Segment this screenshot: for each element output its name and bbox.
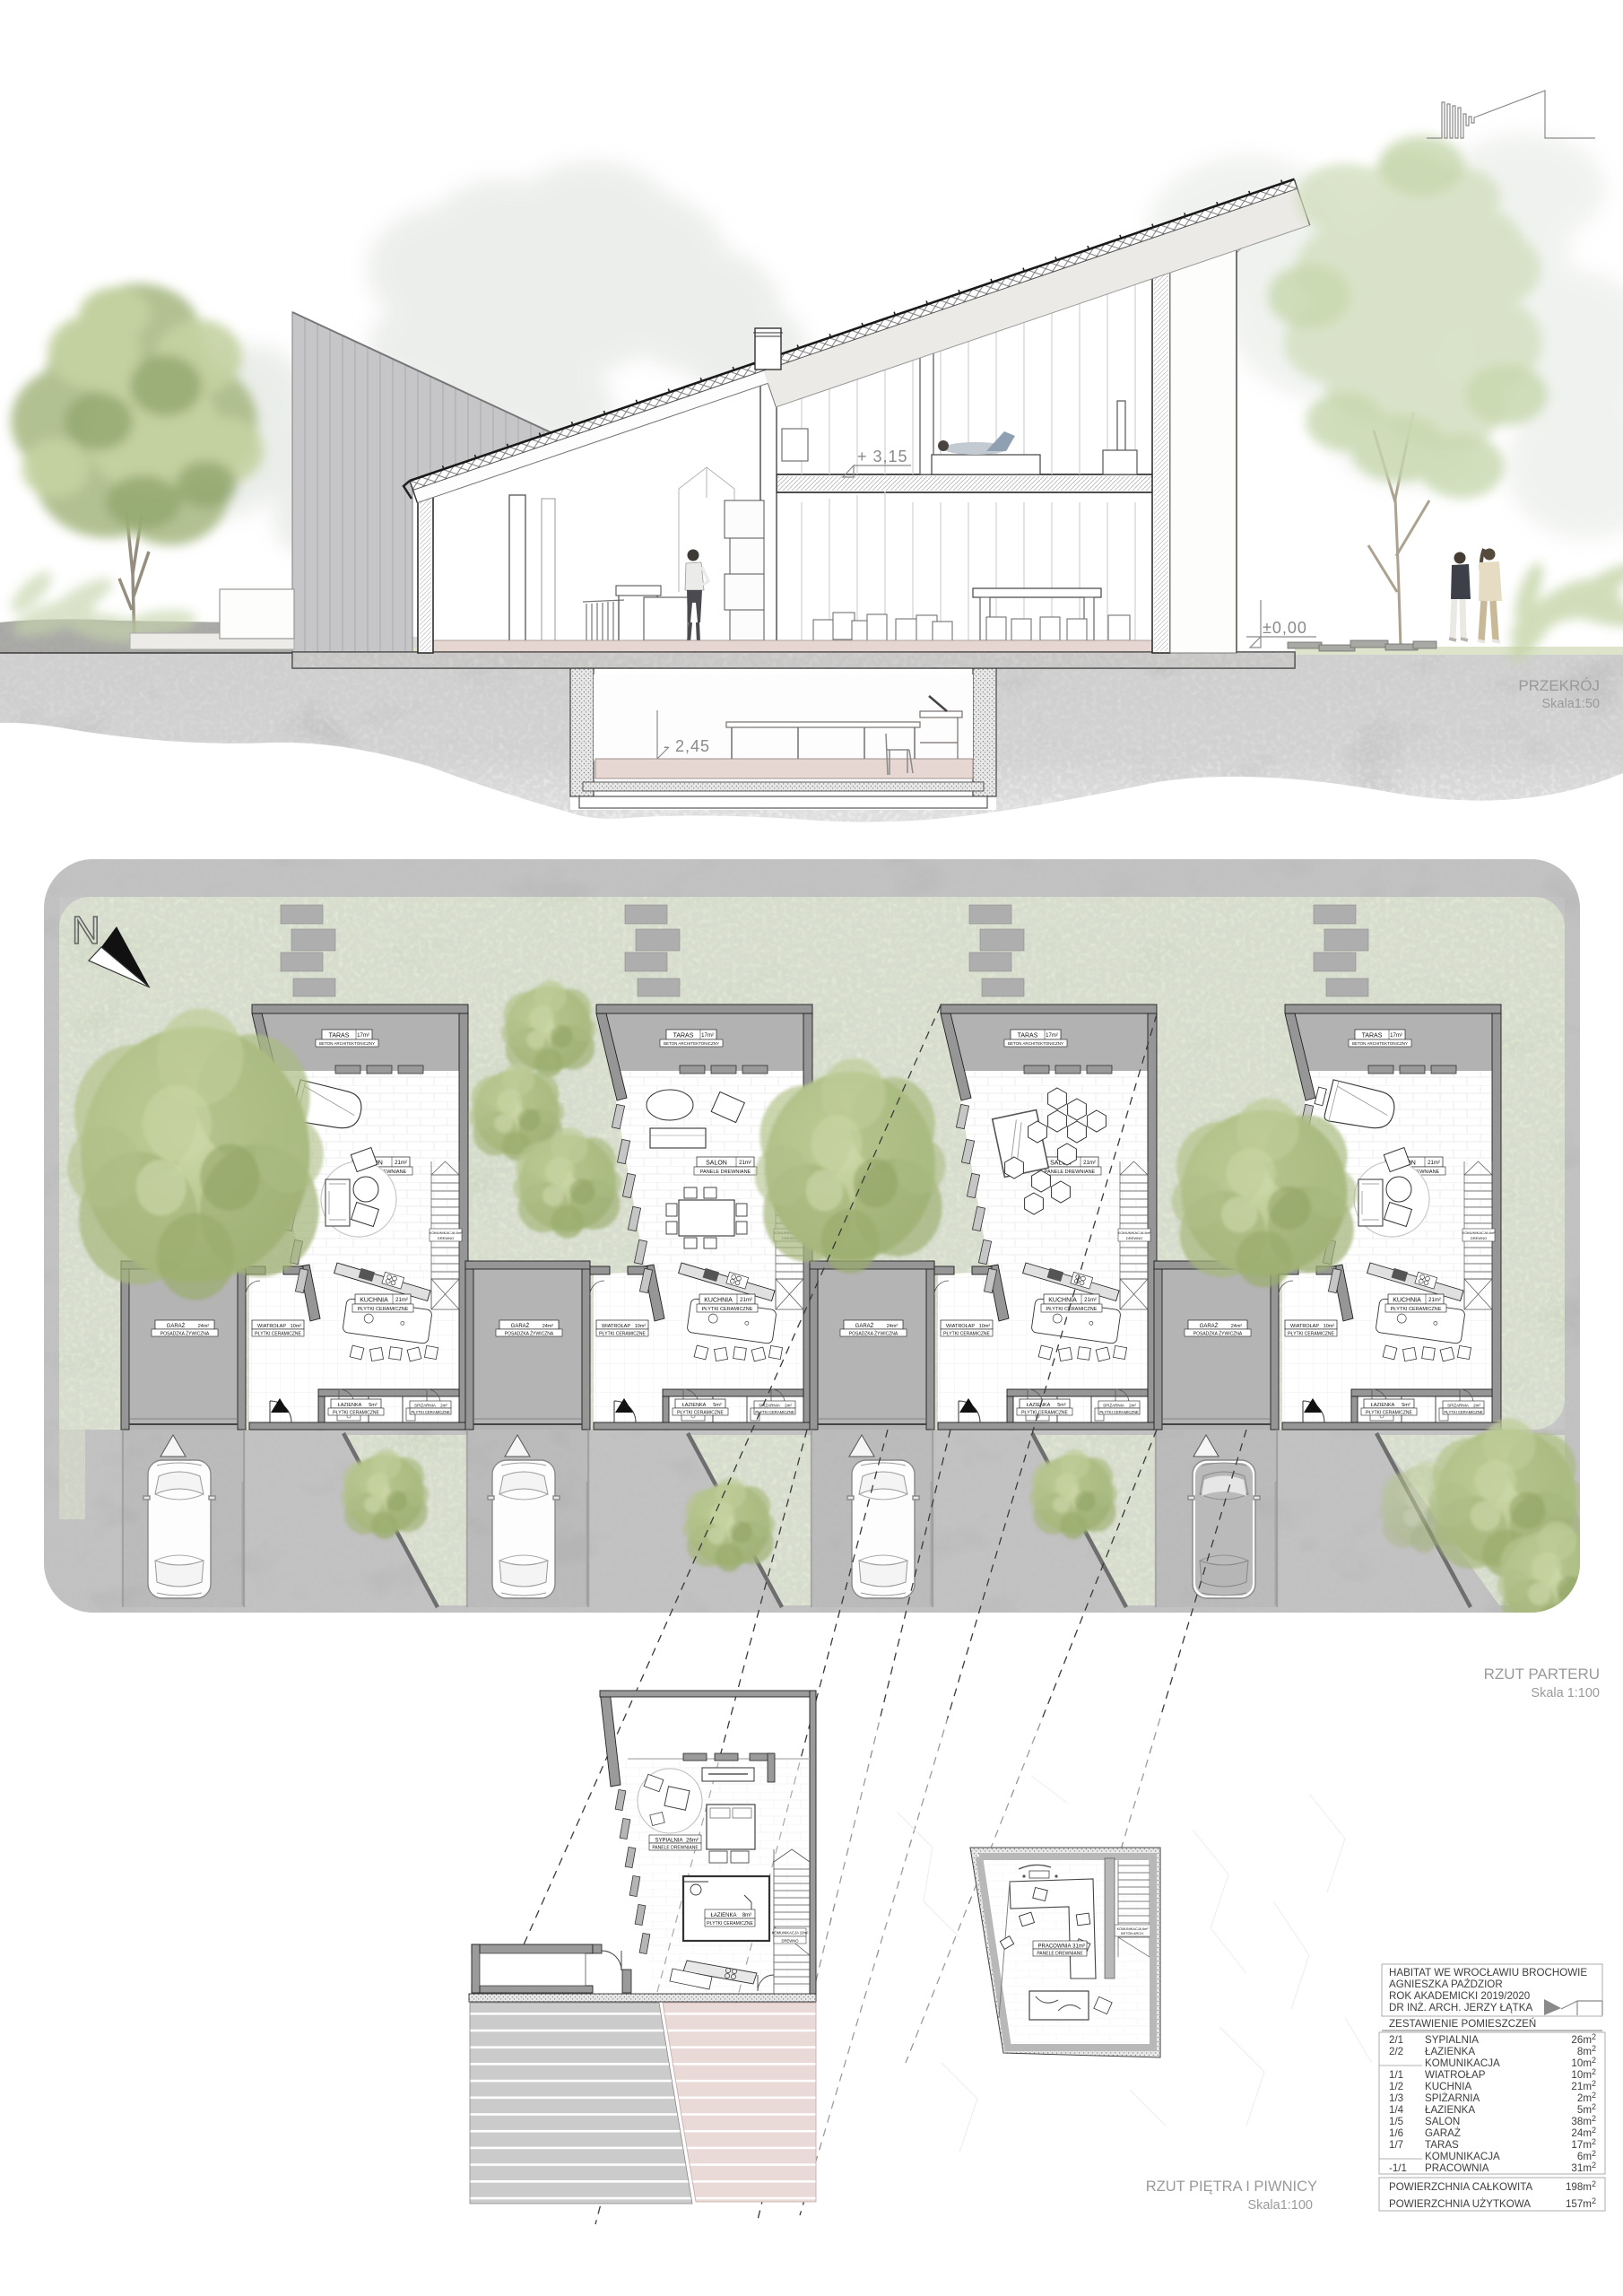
svg-text:1/1: 1/1	[1389, 2069, 1403, 2081]
svg-text:PRACOWNIA: PRACOWNIA	[1425, 2162, 1489, 2174]
svg-text:ŁAZIENKA: ŁAZIENKA	[1425, 2046, 1475, 2057]
svg-text:ŁAZIENKA: ŁAZIENKA	[710, 1913, 736, 1918]
svg-text:-1/1: -1/1	[1389, 2162, 1407, 2174]
svg-text:8m²: 8m²	[742, 1913, 751, 1918]
svg-text:2/2: 2/2	[1389, 2046, 1403, 2057]
svg-text:31m²: 31m²	[1072, 1944, 1085, 1950]
svg-text:BETON ARCH.: BETON ARCH.	[1121, 1932, 1144, 1935]
svg-text:PRACOWNIA: PRACOWNIA	[1037, 1944, 1071, 1950]
svg-text:KOMUNIKACJA 6m²: KOMUNIKACJA 6m²	[1117, 1927, 1150, 1931]
svg-text:1/7: 1/7	[1389, 2139, 1403, 2151]
svg-text:ŁAZIENKA: ŁAZIENKA	[1425, 2104, 1475, 2116]
svg-text:±0,00: ±0,00	[1263, 619, 1307, 637]
svg-text:PŁYTKI CERAMICZNE: PŁYTKI CERAMICZNE	[707, 1921, 753, 1926]
svg-text:ZESTAWIENIE POMIESZCZEŃ: ZESTAWIENIE POMIESZCZEŃ	[1389, 2018, 1536, 2030]
svg-text:KOMUNIKACJA: KOMUNIKACJA	[1425, 2057, 1500, 2069]
svg-text:+ 3,15: + 3,15	[857, 448, 908, 465]
svg-text:26m²: 26m²	[686, 1839, 699, 1844]
svg-text:PANELE DREWNIANE: PANELE DREWNIANE	[652, 1846, 699, 1851]
svg-text:1/6: 1/6	[1389, 2127, 1403, 2139]
svg-text:PRZEKRÓJ: PRZEKRÓJ	[1518, 677, 1600, 694]
svg-text:1/3: 1/3	[1389, 2092, 1403, 2104]
svg-text:1/2: 1/2	[1389, 2081, 1403, 2092]
svg-text:AGNIESZKA PAŹDZIOR: AGNIESZKA PAŹDZIOR	[1389, 1979, 1503, 1990]
svg-text:DREWNO: DREWNO	[781, 1939, 799, 1944]
svg-text:TARAS: TARAS	[1425, 2139, 1459, 2151]
svg-text:ROK AKADEMICKI 2019/2020: ROK AKADEMICKI 2019/2020	[1389, 1990, 1530, 2002]
svg-text:Skala1:100: Skala1:100	[1247, 2198, 1313, 2213]
svg-text:198m2: 198m2	[1566, 2179, 1596, 2193]
svg-text:157m2: 157m2	[1566, 2196, 1596, 2210]
svg-text:KOMUNIKACJA: KOMUNIKACJA	[1425, 2151, 1500, 2162]
svg-text:HABITAT WE WROCŁAWIU BROCHOWIE: HABITAT WE WROCŁAWIU BROCHOWIE	[1389, 1967, 1587, 1979]
svg-text:RZUT PARTERU: RZUT PARTERU	[1484, 1665, 1600, 1683]
svg-text:SALON: SALON	[1425, 2116, 1460, 2127]
svg-text:PANELE DREWNIANE: PANELE DREWNIANE	[1037, 1952, 1083, 1957]
svg-text:POWIERZCHNIA CAŁKOWITA: POWIERZCHNIA CAŁKOWITA	[1389, 2181, 1532, 2193]
svg-text:- 2,45: - 2,45	[664, 737, 710, 755]
svg-text:SYPIALNIA: SYPIALNIA	[1425, 2034, 1479, 2046]
svg-text:N: N	[72, 909, 100, 952]
svg-text:SYPIALNIA: SYPIALNIA	[655, 1839, 682, 1844]
svg-text:Skala 1:100: Skala 1:100	[1531, 1686, 1600, 1700]
svg-text:DR INŻ. ARCH. JERZY ŁĄTKA: DR INŻ. ARCH. JERZY ŁĄTKA	[1389, 2002, 1532, 2013]
svg-text:POWIERZCHNIA UŻYTKOWA: POWIERZCHNIA UŻYTKOWA	[1389, 2198, 1531, 2210]
svg-text:WIATROŁAP: WIATROŁAP	[1425, 2069, 1486, 2081]
svg-text:1/4: 1/4	[1389, 2104, 1404, 2116]
svg-text:2/1: 2/1	[1389, 2034, 1403, 2046]
svg-text:RZUT PIĘTRA I PIWNICY: RZUT PIĘTRA I PIWNICY	[1146, 2179, 1317, 2195]
svg-text:1/5: 1/5	[1389, 2116, 1403, 2127]
svg-text:KUCHNIA: KUCHNIA	[1425, 2081, 1471, 2092]
svg-text:KOMUNIKACJA 10m²: KOMUNIKACJA 10m²	[772, 1931, 809, 1935]
svg-text:Skala1:50: Skala1:50	[1542, 697, 1601, 711]
svg-text:SPIŻARNIA: SPIŻARNIA	[1425, 2092, 1480, 2104]
svg-text:GARAŻ: GARAŻ	[1425, 2127, 1461, 2139]
